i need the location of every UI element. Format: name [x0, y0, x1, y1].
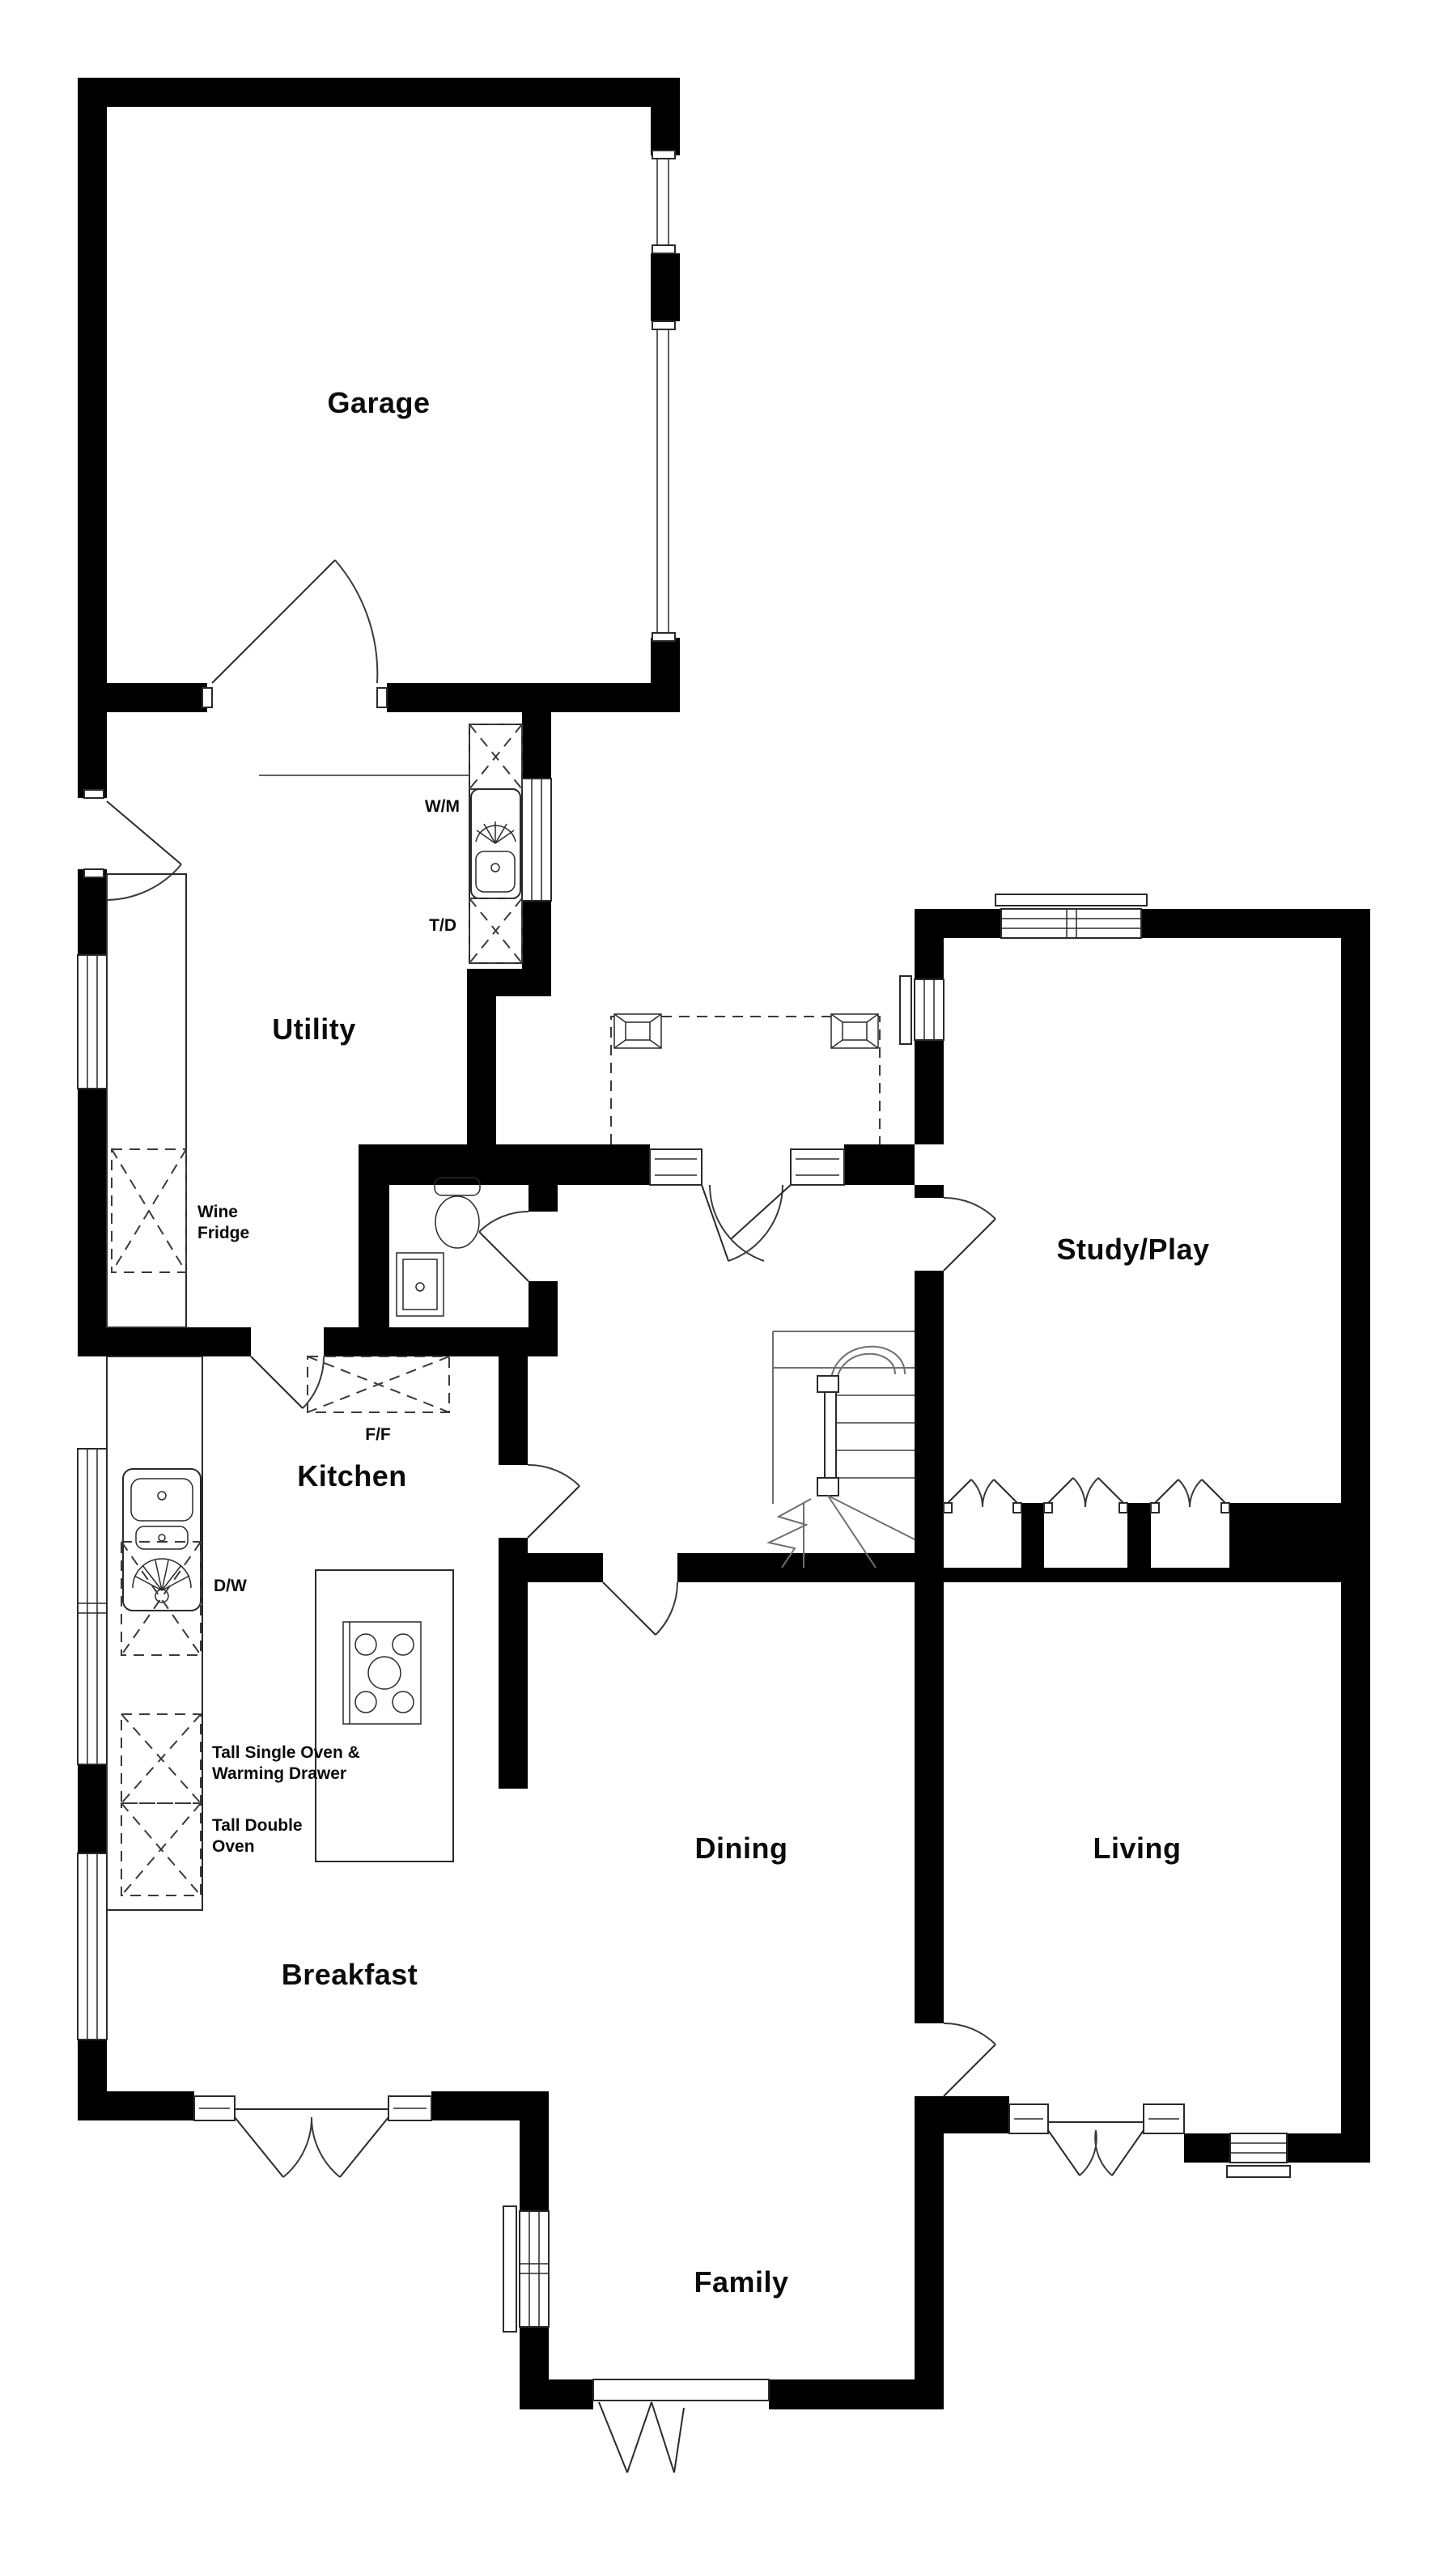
double-door-1: [944, 1479, 1021, 1513]
label-breakfast: Breakfast: [282, 1958, 418, 1991]
french-doors-breakfast: [194, 2096, 431, 2177]
label-ff: F/F: [365, 1425, 391, 1444]
label-tall-double-line2: Oven: [212, 1837, 255, 1856]
label-wine-fridge-line1: Wine: [197, 1203, 238, 1221]
label-wm: W/M: [425, 797, 460, 816]
label-tall-double-line1: Tall Double: [212, 1816, 303, 1835]
label-kitchen: Kitchen: [297, 1459, 407, 1492]
kitchen-island: [316, 1570, 453, 1861]
utility-sink-unit: [471, 789, 520, 898]
doors: [84, 560, 1229, 2473]
washing-machine-box: [469, 724, 522, 789]
label-wine-fridge-line2: Fridge: [197, 1224, 249, 1242]
garage-vehicle-door: [652, 151, 675, 641]
double-doors-study-living: [944, 1478, 1229, 1513]
bifold-doors-family: [593, 2379, 769, 2473]
tumble-dryer-box: [469, 898, 522, 963]
tall-double-oven-box: [121, 1803, 201, 1895]
label-utility: Utility: [272, 1012, 356, 1046]
stairs: [769, 1331, 915, 1568]
floor-plan-page: Garage Utility Study/Play Kitchen Dining…: [0, 0, 1456, 2564]
window-family-left: [503, 2206, 549, 2332]
door-garage: [202, 560, 387, 707]
label-tall-single-line2: Warming Drawer: [212, 1764, 346, 1783]
double-door-2: [1044, 1478, 1127, 1513]
label-living: Living: [1093, 1832, 1182, 1865]
door-kitchen-hall: [528, 1465, 579, 1538]
label-dw: D/W: [214, 1577, 247, 1595]
porch-column-right: [831, 1014, 878, 1048]
door-dining: [603, 1582, 677, 1635]
door-wc: [479, 1212, 528, 1281]
door-living: [944, 2023, 995, 2096]
door-utility-kitchen: [251, 1356, 324, 1408]
toilet: [435, 1178, 480, 1248]
fixtures: [107, 724, 522, 1910]
label-tall-single-line1: Tall Single Oven &: [212, 1743, 360, 1762]
door-front-entrance: [650, 1149, 844, 1261]
window-utility-left: [78, 955, 107, 1089]
wc-basin: [397, 1253, 444, 1316]
label-family: Family: [694, 2265, 788, 2299]
label-garage: Garage: [327, 386, 430, 419]
window-living-bottom: [1227, 2133, 1290, 2177]
window-kitchen-left: [78, 1449, 107, 1764]
label-dining: Dining: [695, 1832, 788, 1865]
label-td: T/D: [429, 916, 456, 935]
wine-fridge-box: [112, 1149, 186, 1272]
french-doors-living: [1009, 2104, 1184, 2176]
label-study: Study/Play: [1056, 1233, 1209, 1266]
window-study-left: [900, 976, 944, 1044]
fridge-freezer-box: [308, 1356, 449, 1412]
window-utility-right: [522, 779, 551, 901]
window-study-top: [995, 894, 1147, 938]
porch-column-left: [614, 1014, 661, 1048]
floor-plan-drawing: Garage Utility Study/Play Kitchen Dining…: [0, 0, 1456, 2564]
hob: [343, 1622, 421, 1724]
kitchen-sink-unit: [123, 1469, 201, 1611]
door-study: [944, 1198, 995, 1271]
porch: [611, 1014, 880, 1144]
tall-single-oven-box: [121, 1714, 201, 1803]
double-door-3: [1151, 1479, 1229, 1513]
window-breakfast-left: [78, 1853, 107, 2040]
